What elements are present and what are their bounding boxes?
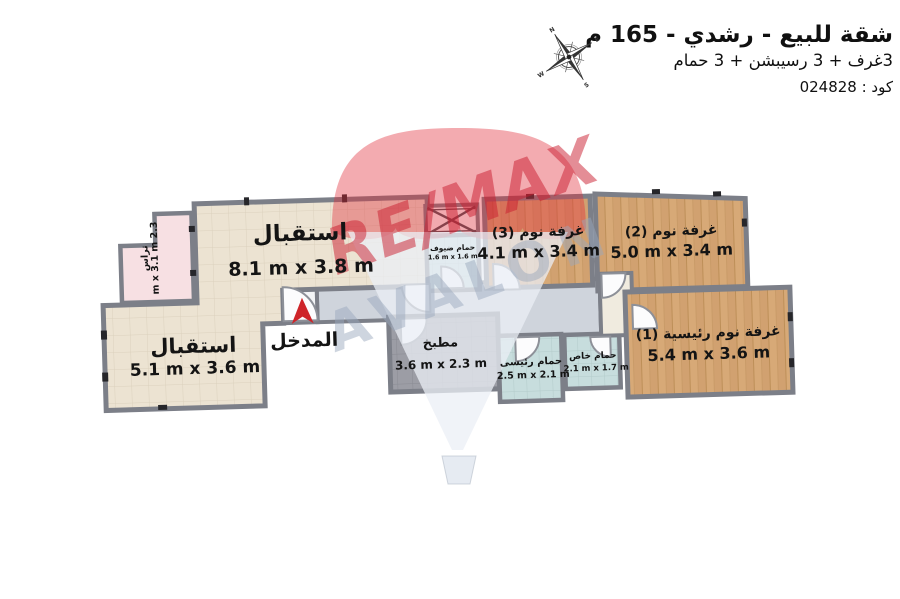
compass-s: S [583, 81, 590, 89]
master-bedroom-shape [625, 287, 793, 397]
floorplan-page: شقة للبيع - رشدي - 165 م 3غرف + 3 رسيبشن… [0, 0, 900, 599]
compass-w: W [537, 70, 547, 80]
compass-e: E [594, 36, 601, 44]
compass-n: N [548, 26, 556, 35]
listing-code: كود : 024828 [585, 78, 893, 96]
listing-header: شقة للبيع - رشدي - 165 م 3غرف + 3 رسيبشن… [585, 22, 893, 96]
listing-subtitle: 3غرف + 3 رسيبشن + 3 حمام [585, 51, 893, 70]
page-title: شقة للبيع - رشدي - 165 م [585, 22, 893, 48]
terrace-shape [119, 213, 194, 303]
floor-plan-svg [91, 161, 828, 433]
compass-rose-icon: N E S W [532, 20, 606, 94]
floor-plan [91, 161, 828, 433]
